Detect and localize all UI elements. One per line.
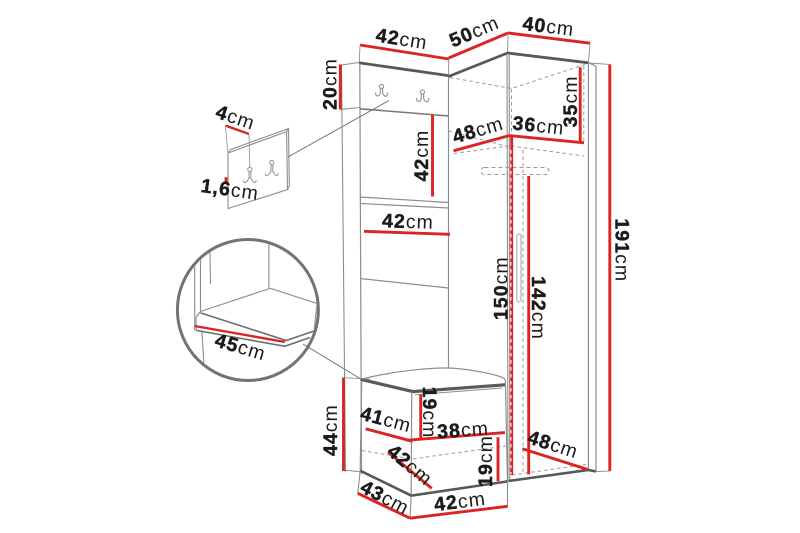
svg-text:20cm: 20cm bbox=[320, 58, 342, 110]
svg-text:142cm: 142cm bbox=[527, 276, 549, 340]
svg-text:35cm: 35cm bbox=[560, 75, 582, 127]
svg-text:42cm: 42cm bbox=[411, 130, 433, 182]
svg-text:191cm: 191cm bbox=[611, 218, 633, 282]
svg-text:150cm: 150cm bbox=[490, 256, 512, 320]
svg-text:19cm: 19cm bbox=[475, 435, 497, 487]
svg-text:42cm: 42cm bbox=[382, 210, 435, 234]
svg-text:44cm: 44cm bbox=[320, 404, 342, 456]
